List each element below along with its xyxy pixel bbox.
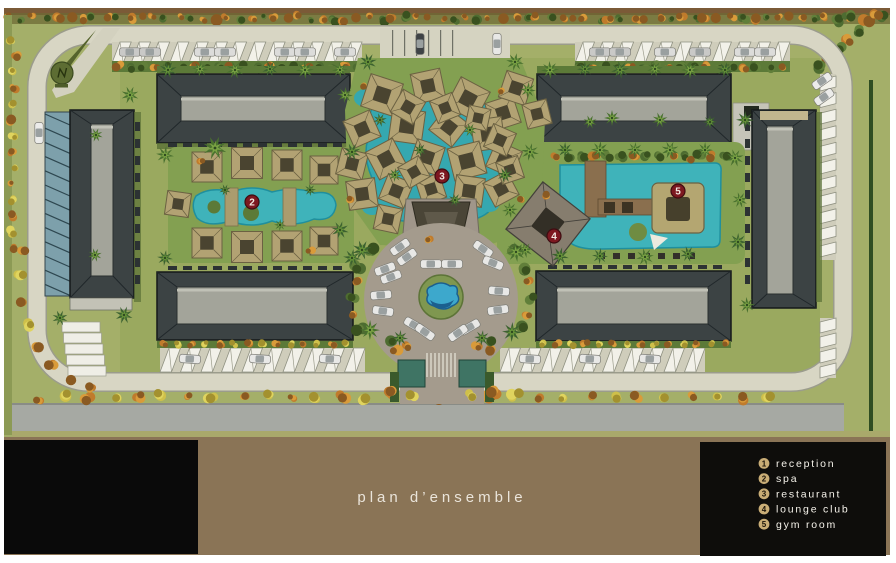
- svg-text:5: 5: [675, 186, 681, 197]
- svg-text:reception: reception: [776, 458, 835, 470]
- svg-text:4: 4: [762, 505, 767, 514]
- svg-text:2: 2: [249, 197, 255, 208]
- svg-text:plan d’ensemble: plan d’ensemble: [357, 489, 526, 506]
- svg-text:5: 5: [762, 520, 767, 529]
- svg-text:lounge club: lounge club: [776, 504, 850, 516]
- svg-text:3: 3: [762, 490, 767, 499]
- svg-text:1: 1: [762, 459, 767, 468]
- svg-text:spa: spa: [776, 473, 798, 485]
- svg-text:2: 2: [762, 475, 767, 484]
- svg-text:4: 4: [551, 231, 557, 242]
- svg-text:3: 3: [439, 171, 445, 182]
- svg-text:gym room: gym room: [776, 519, 837, 531]
- svg-text:restaurant: restaurant: [776, 488, 841, 500]
